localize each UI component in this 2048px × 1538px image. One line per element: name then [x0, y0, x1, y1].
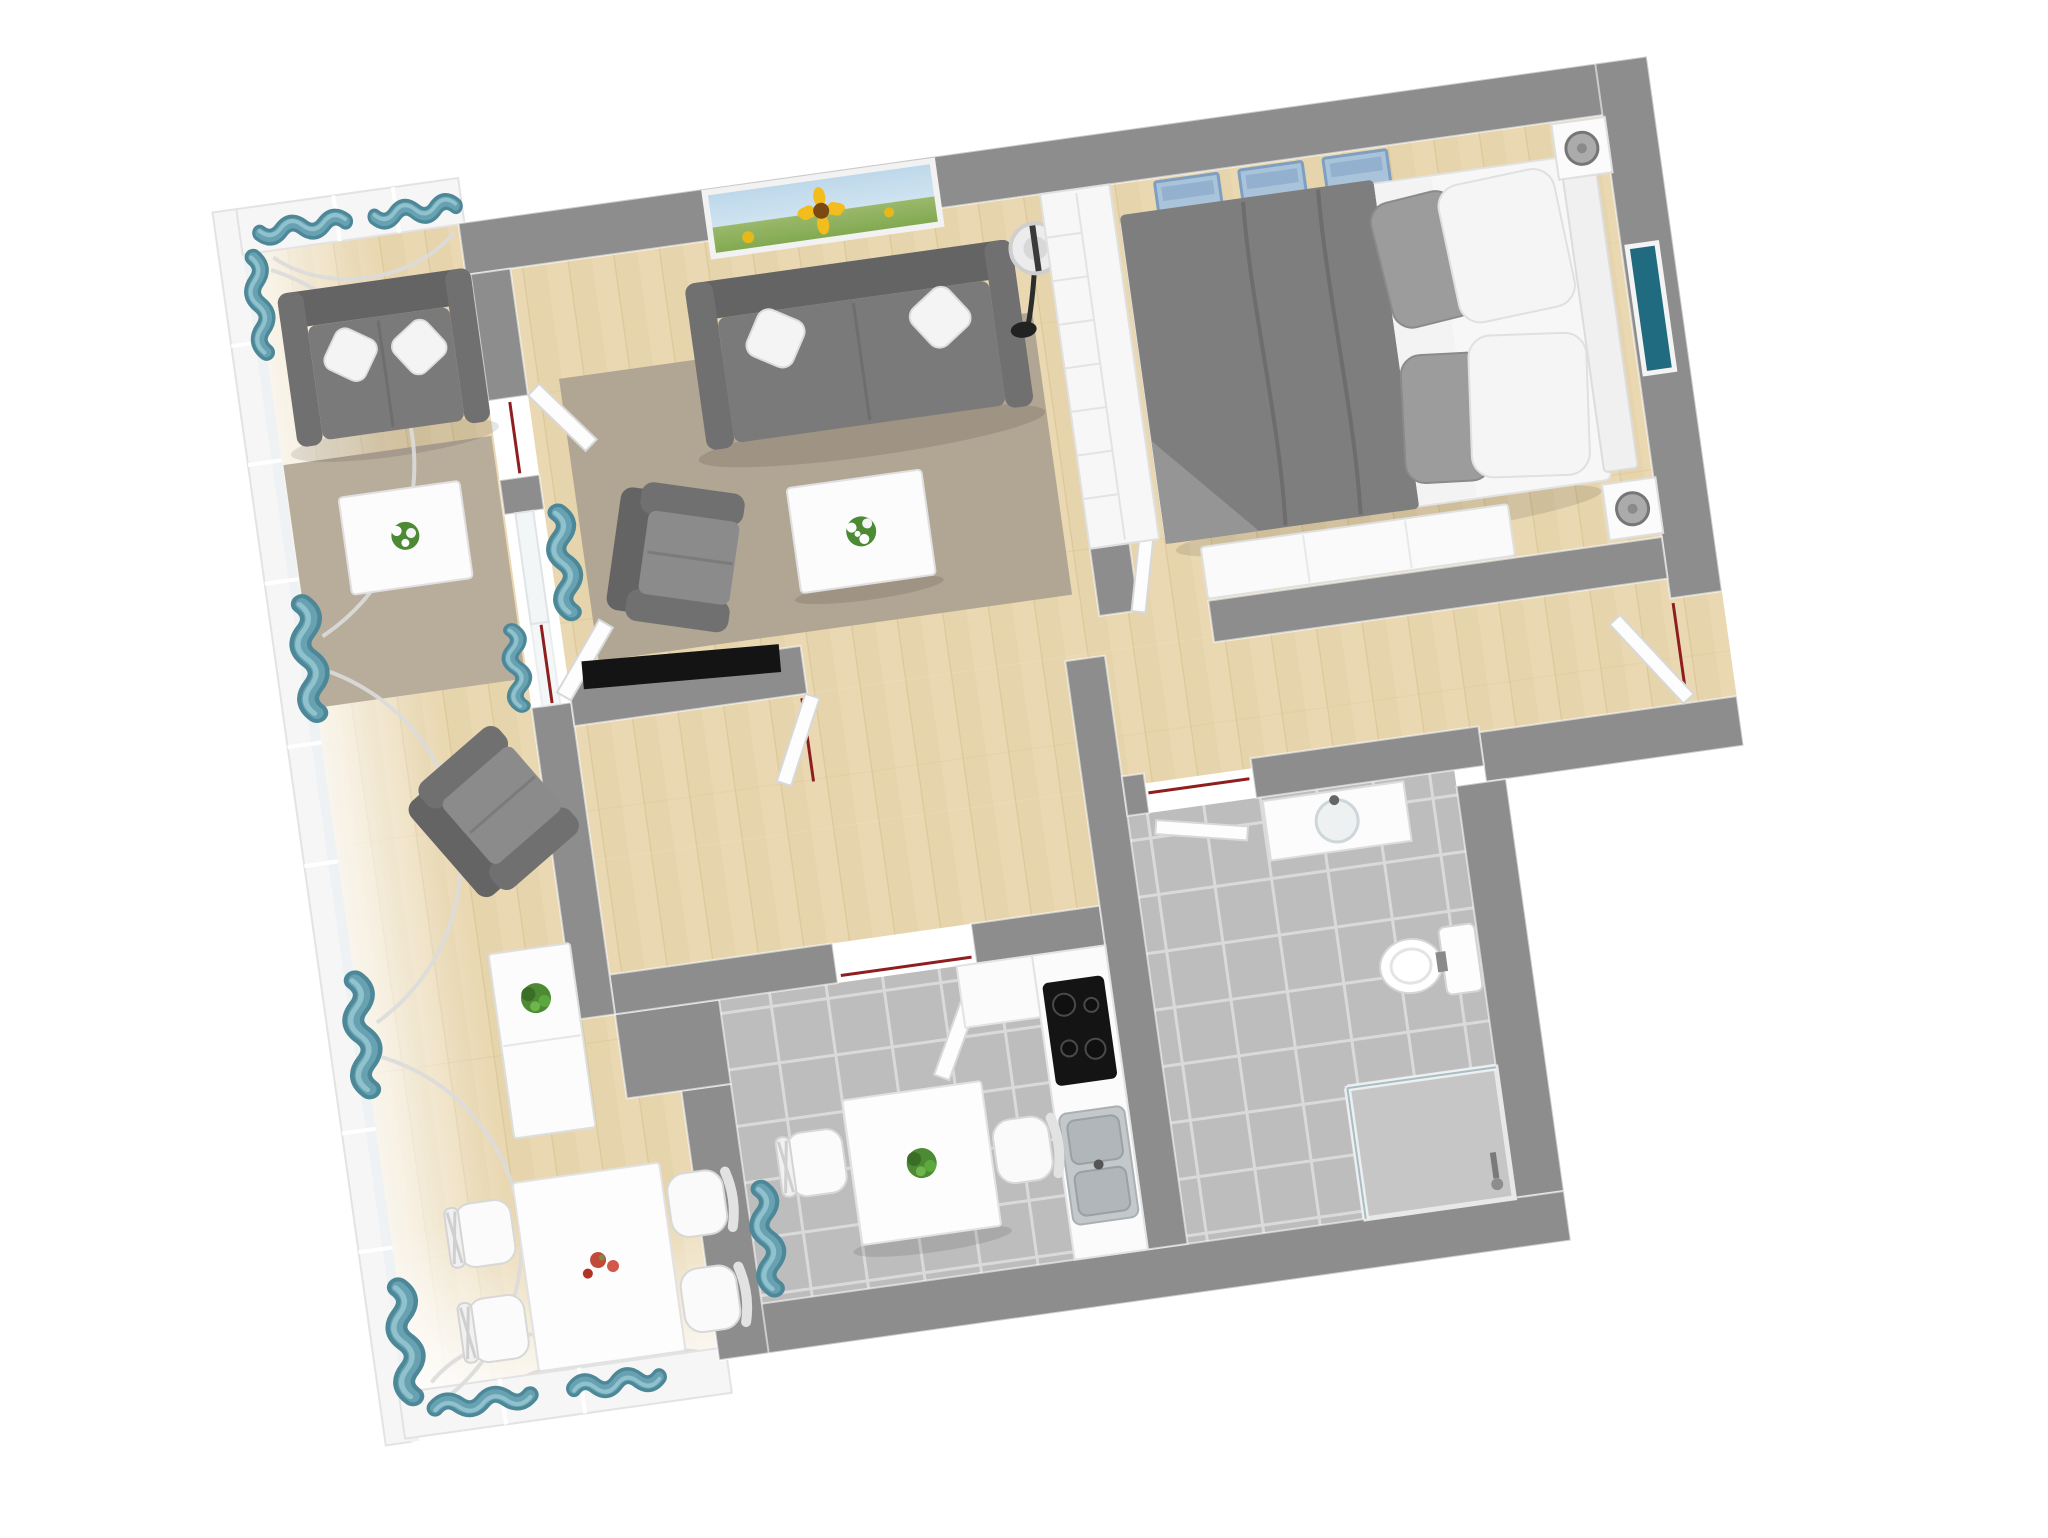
sunroom-coffee-table [338, 481, 472, 595]
pillow-white-2 [1468, 332, 1591, 478]
wall-boundary-b [500, 475, 544, 515]
living-armchair [604, 478, 746, 634]
nightstand-top [1551, 117, 1612, 180]
floor-plan [213, 12, 1814, 1446]
kitchen-sink [1058, 1105, 1139, 1225]
floor-plan-svg: 3D apartment floor plan, top-down view [0, 0, 2048, 1538]
sunroom-loveseat [277, 267, 492, 448]
bed [1120, 149, 1640, 544]
kitchen-counter-return [957, 956, 1041, 1028]
living-coffee-table [786, 469, 935, 593]
shower [1347, 1067, 1514, 1219]
nightstand-bottom [1602, 477, 1663, 540]
wall-bath-north-a [1122, 773, 1149, 816]
wall-kitchen-nw [615, 1000, 731, 1099]
floor-plan-stage: 3D apartment floor plan, top-down view [0, 0, 2048, 1538]
